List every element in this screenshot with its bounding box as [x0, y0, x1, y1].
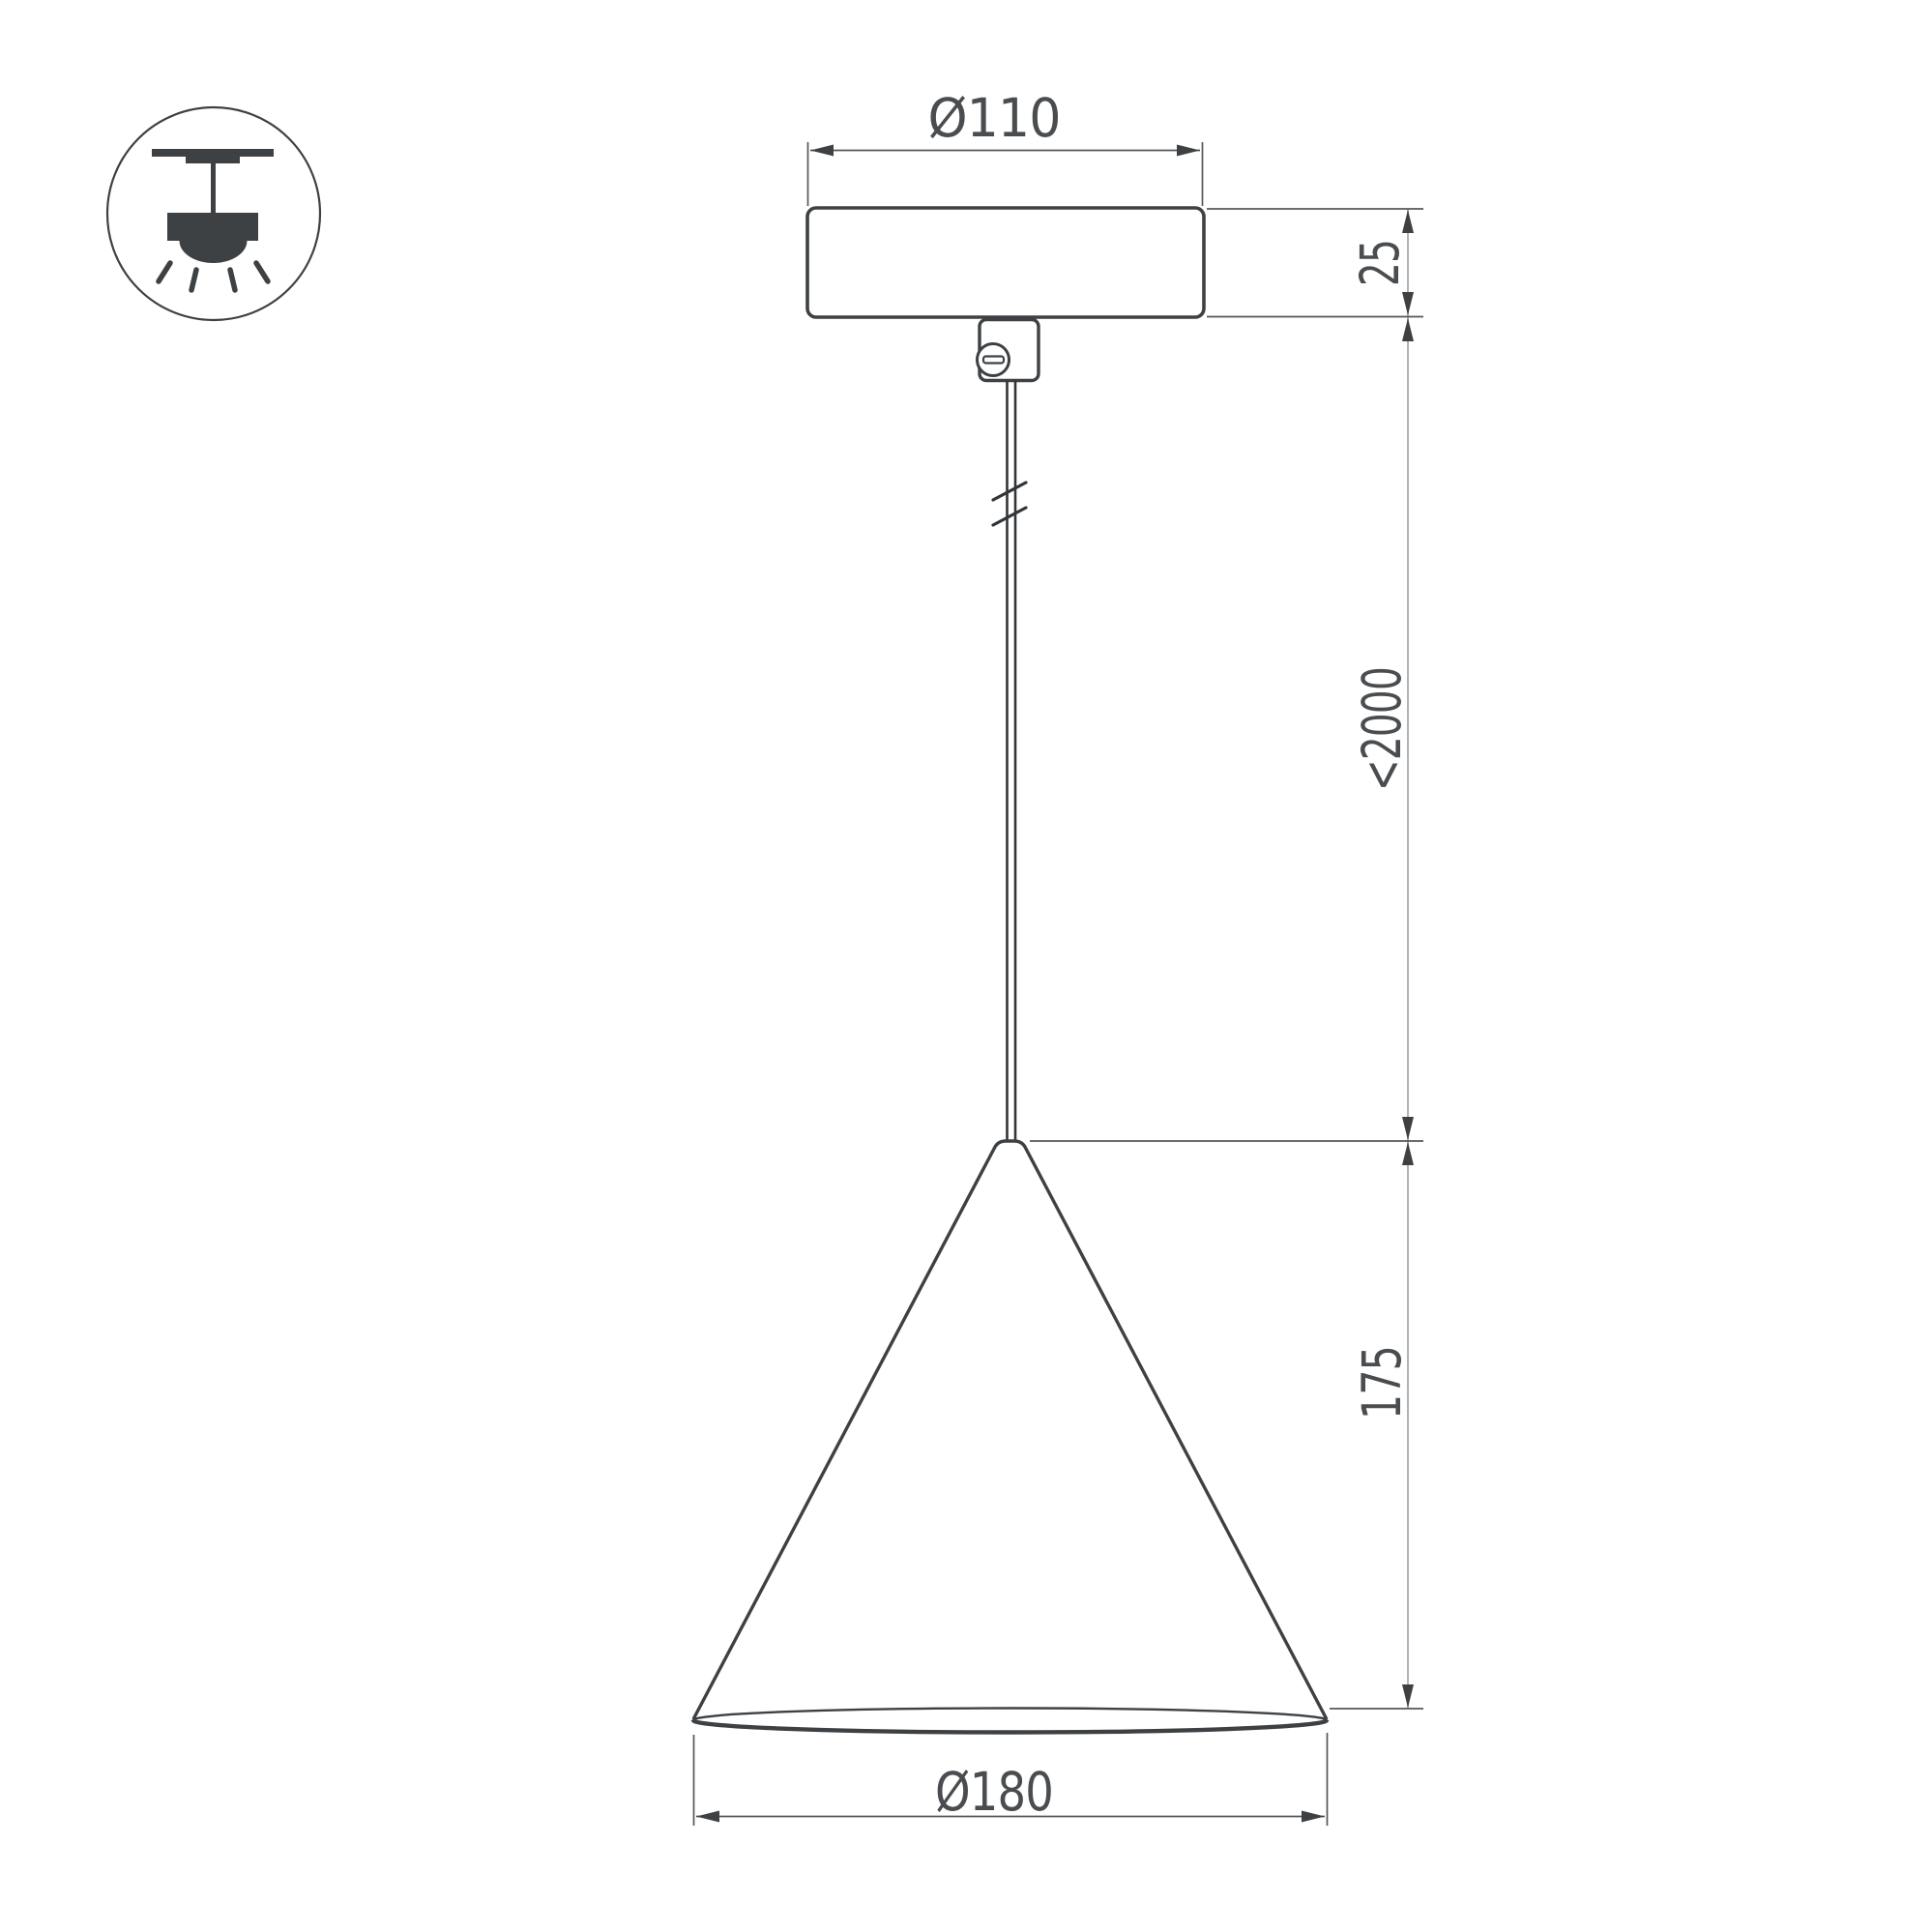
shade-rim-bottom-edge	[693, 1720, 1327, 1732]
dim-label-shade-height: 175	[1351, 1346, 1413, 1420]
suspension-cable	[1008, 381, 1016, 1141]
pendant-lamp-dimension-drawing: Ø110 25 <2000 175	[0, 0, 1932, 1932]
cable-break-symbol	[993, 483, 1026, 525]
icon-rod	[211, 160, 216, 216]
dim-label-suspension-length: <2000	[1351, 667, 1413, 791]
shade-cone	[693, 1141, 1327, 1719]
dim-shade-diameter: Ø180	[694, 1733, 1328, 1826]
dim-label-canopy-height: 25	[1349, 240, 1411, 286]
gland-screw-slot	[983, 357, 1004, 364]
dim-canopy-diameter: Ø110	[808, 87, 1203, 206]
pendant-ceiling-mount-icon	[107, 107, 320, 320]
dim-label-shade-diameter: Ø180	[935, 1761, 1053, 1823]
drawing-canvas: Ø110 25 <2000 175	[0, 0, 1932, 1932]
dim-label-canopy-diameter: Ø110	[928, 87, 1061, 149]
canopy	[807, 208, 1204, 317]
icon-lamp-body	[167, 213, 258, 241]
